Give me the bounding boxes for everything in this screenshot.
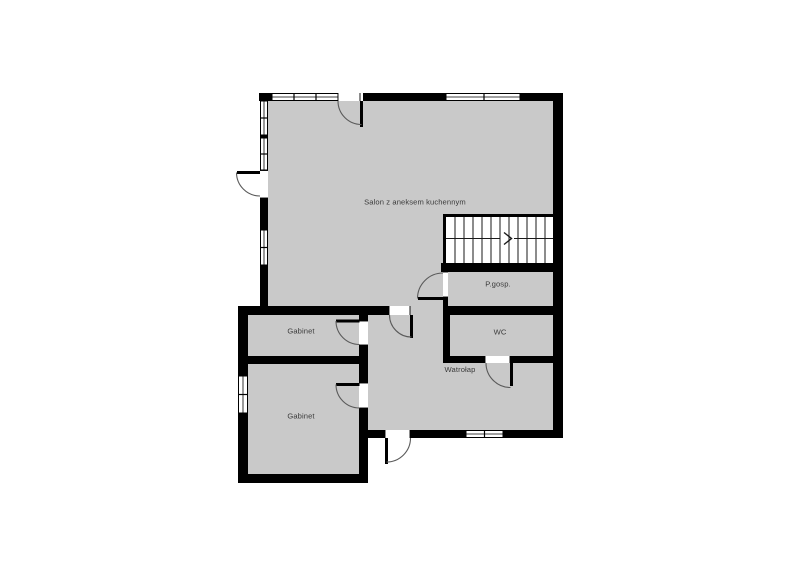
door-leaf — [418, 297, 443, 300]
wall-segment — [238, 356, 368, 364]
floorplan-canvas: Salon z aneksem kuchennym P.gosp. WC Wat… — [0, 0, 800, 585]
door-leaf — [410, 315, 413, 338]
wall-segment — [443, 263, 448, 272]
room-label-gabinet1: Gabinet — [287, 327, 315, 336]
door-swing-arc — [387, 438, 411, 462]
floorplan-svg: Salon z aneksem kuchennym P.gosp. WC Wat… — [0, 0, 800, 585]
window-left-2 — [261, 138, 268, 170]
wall-segment — [238, 474, 368, 483]
door-swing-arc — [237, 173, 261, 197]
wall-segment — [510, 356, 563, 363]
door-leaf — [237, 171, 260, 174]
wall-segment — [443, 315, 450, 363]
room-pgosp-floor — [448, 272, 553, 306]
door-leaf — [385, 438, 388, 464]
room-label-pgosp: P.gosp. — [485, 280, 510, 289]
room-label-salon: Salon z aneksem kuchennym — [364, 198, 466, 207]
window-gabinet2 — [239, 376, 248, 413]
wall-segment — [441, 263, 563, 272]
room-label-wc: WC — [494, 328, 507, 337]
wall-segment — [443, 356, 485, 363]
wall-segment — [259, 93, 272, 101]
wall-segment — [260, 198, 268, 230]
window-left-3 — [261, 230, 268, 265]
wall-segment — [363, 93, 446, 101]
window-top-1 — [272, 94, 338, 101]
door-leaf — [360, 101, 363, 127]
stairs-top-edge — [443, 214, 553, 217]
wall-segment — [238, 413, 248, 483]
room-label-wiatrolap: Watrołap — [445, 365, 476, 374]
door-leaf — [336, 383, 360, 386]
door-leaf — [510, 363, 513, 386]
wall-segment — [503, 430, 563, 438]
passage-floor — [410, 306, 443, 315]
stairs — [443, 214, 553, 263]
window-bottom — [466, 431, 503, 438]
wall-segment — [410, 430, 466, 438]
door-bottom-exterior — [385, 430, 411, 464]
wall-segment — [238, 306, 389, 315]
wall-segment — [443, 306, 563, 315]
room-wiatrolap-floor-left — [368, 315, 443, 430]
window-top-2 — [446, 94, 520, 101]
wall-segment — [359, 408, 368, 483]
wall-segment — [238, 306, 248, 376]
door-left-exterior — [237, 171, 269, 199]
window-left-1 — [261, 101, 268, 135]
stairs-left-edge — [443, 214, 446, 263]
door-leaf — [336, 320, 360, 323]
room-label-gabinet2: Gabinet — [287, 412, 315, 421]
